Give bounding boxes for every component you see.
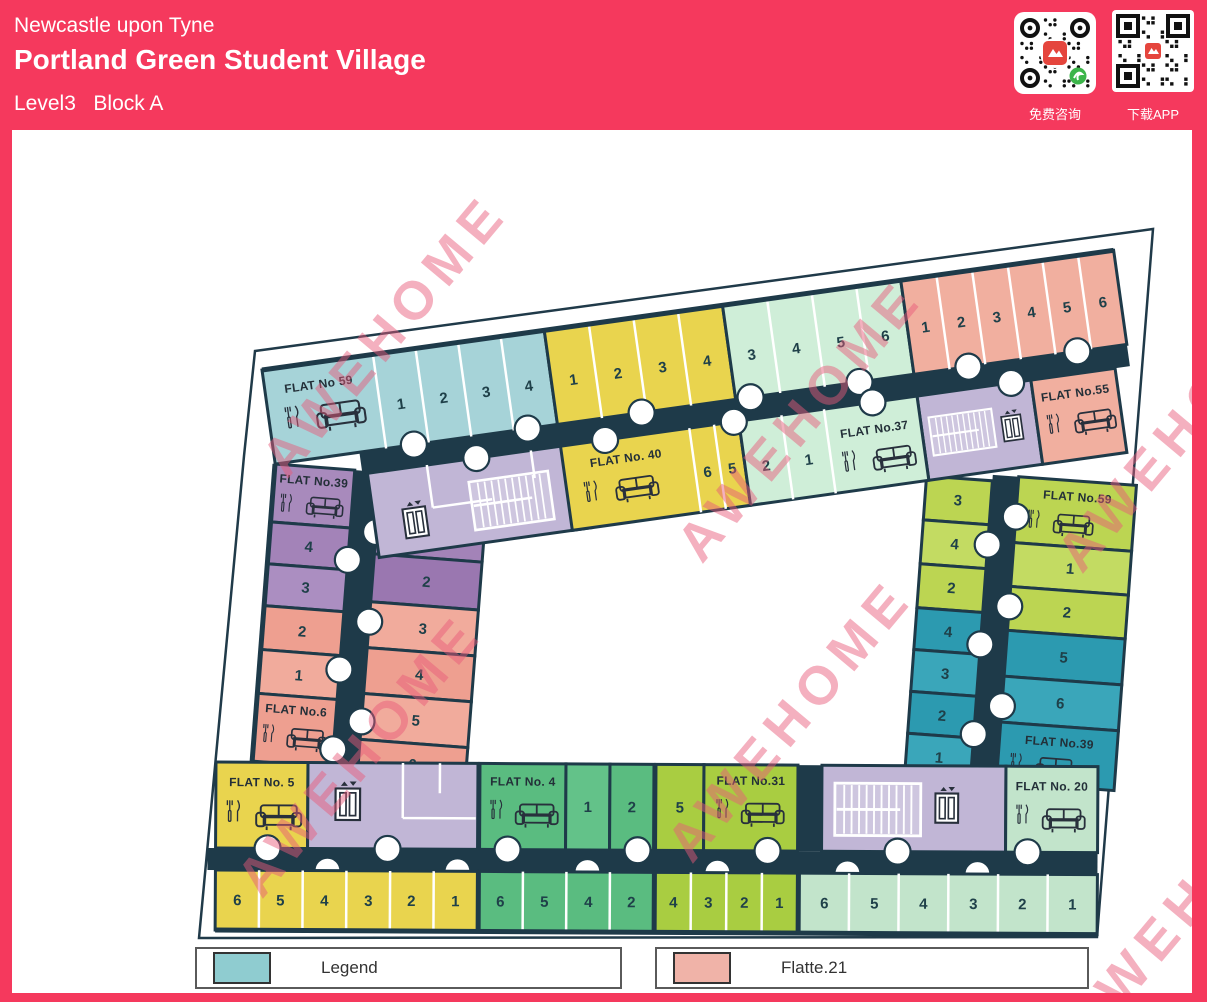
flat-20-rooms: 6 5 4 3 2 1 [799, 873, 1097, 935]
svg-text:6: 6 [496, 894, 504, 911]
svg-text:3: 3 [364, 893, 372, 910]
svg-text:3: 3 [940, 666, 950, 684]
right-wing: 3 4 2 FLAT No.59 1 2 4 3 2 1 5 6 FLAT No… [905, 470, 1137, 791]
svg-text:2: 2 [1062, 604, 1072, 622]
app-qr-label: 下载APP [1112, 104, 1194, 123]
svg-text:3: 3 [953, 492, 963, 510]
svg-text:3: 3 [301, 579, 311, 597]
flat-5-rooms: 6 5 4 3 2 1 [215, 870, 477, 931]
flat-20: FLAT No. 20 [1006, 766, 1098, 852]
svg-text:3: 3 [418, 621, 428, 639]
legend-swatch-teal [213, 952, 271, 984]
svg-text:1: 1 [934, 749, 944, 767]
wechat-qr-code[interactable] [1014, 12, 1096, 94]
flat-31-label: FLAT No.31 [716, 774, 785, 788]
legend-flat-label: Flatte.21 [781, 958, 847, 978]
svg-text:6: 6 [820, 895, 828, 912]
svg-text:2: 2 [627, 894, 635, 911]
flat-31: 5 FLAT No.31 [656, 764, 798, 851]
svg-text:3: 3 [704, 895, 712, 912]
svg-text:1: 1 [584, 799, 592, 816]
svg-text:5: 5 [676, 799, 684, 816]
bottom-band: FLAT No. 5 FLAT No. 4 1 2 5 FLAT No.31 [207, 762, 1098, 935]
svg-text:1: 1 [1068, 897, 1076, 914]
app-qr-image [1112, 10, 1194, 92]
floorplan-svg: FLAT No.39 4 3 1 2 2 1 FLAT No.6 3 4 5 6 [12, 130, 1192, 993]
utility-top-right [917, 380, 1043, 480]
page: { "header": { "city": "Newcastle upon Ty… [0, 0, 1207, 1002]
flat-20-label: FLAT No. 20 [1016, 779, 1089, 793]
svg-text:5: 5 [870, 895, 878, 912]
header-city: Newcastle upon Tyne [14, 14, 214, 38]
svg-text:6: 6 [233, 892, 241, 909]
svg-text:2: 2 [947, 580, 957, 598]
svg-text:2: 2 [937, 707, 947, 725]
flat-4-rooms: 6 5 4 2 [479, 871, 653, 932]
floorplan-canvas: FLAT No.39 4 3 1 2 2 1 FLAT No.6 3 4 5 6 [12, 130, 1192, 993]
svg-text:2: 2 [407, 893, 415, 910]
block-label: Block A [93, 92, 163, 115]
svg-text:1: 1 [294, 667, 304, 685]
stairs-icon [835, 783, 921, 836]
flat-5-label: FLAT No. 5 [229, 775, 295, 789]
svg-text:3: 3 [969, 896, 977, 913]
svg-text:2: 2 [297, 623, 307, 641]
svg-text:6: 6 [1055, 695, 1065, 713]
stairs-icon [928, 409, 996, 456]
flat-4-label: FLAT No. 4 [490, 774, 556, 788]
legend-swatch-salmon [673, 952, 731, 984]
svg-text:4: 4 [669, 894, 678, 911]
legend-box: Legend [195, 947, 622, 989]
svg-text:1: 1 [1065, 560, 1075, 578]
svg-text:5: 5 [540, 894, 548, 911]
wechat-qr-label: 免费咨询 [1014, 104, 1096, 123]
svg-text:5: 5 [411, 712, 421, 730]
svg-text:2: 2 [628, 799, 636, 816]
flat-31-rooms: 4 3 2 1 [655, 872, 797, 933]
corridor-stub [798, 765, 822, 851]
svg-text:4: 4 [919, 896, 928, 913]
svg-text:5: 5 [276, 892, 284, 909]
wechat-qr-image [1014, 12, 1096, 94]
page-title: Portland Green Student Village [14, 44, 426, 76]
svg-text:1: 1 [775, 895, 783, 912]
legend-label: Legend [321, 958, 378, 978]
svg-text:1: 1 [451, 893, 459, 910]
svg-text:4: 4 [320, 893, 329, 910]
stairs-icon [469, 471, 555, 530]
svg-text:4: 4 [584, 894, 593, 911]
legend-box-flat: Flatte.21 [655, 947, 1089, 989]
svg-text:2: 2 [422, 574, 432, 592]
utility-bottom-right [822, 765, 1006, 852]
app-qr-code[interactable] [1112, 10, 1194, 92]
svg-text:2: 2 [1018, 896, 1026, 913]
svg-text:5: 5 [1059, 649, 1069, 667]
header-level-block: Level3 Block A [14, 92, 163, 116]
level-label: Level3 [14, 92, 76, 115]
svg-text:2: 2 [740, 895, 748, 912]
